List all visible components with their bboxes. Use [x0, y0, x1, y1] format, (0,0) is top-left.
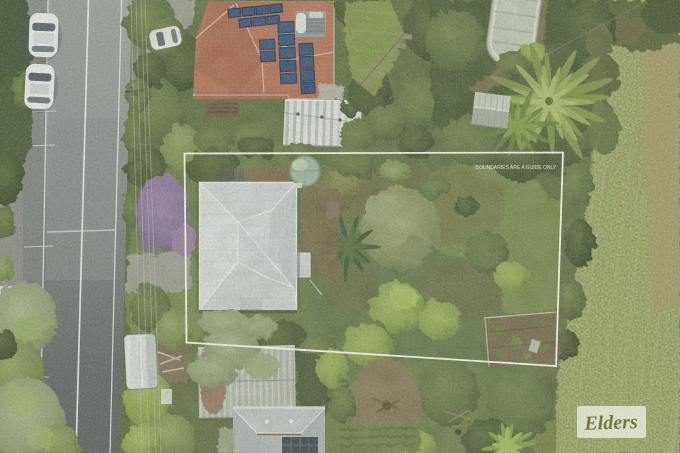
svg-text:Elders: Elders — [583, 411, 638, 435]
